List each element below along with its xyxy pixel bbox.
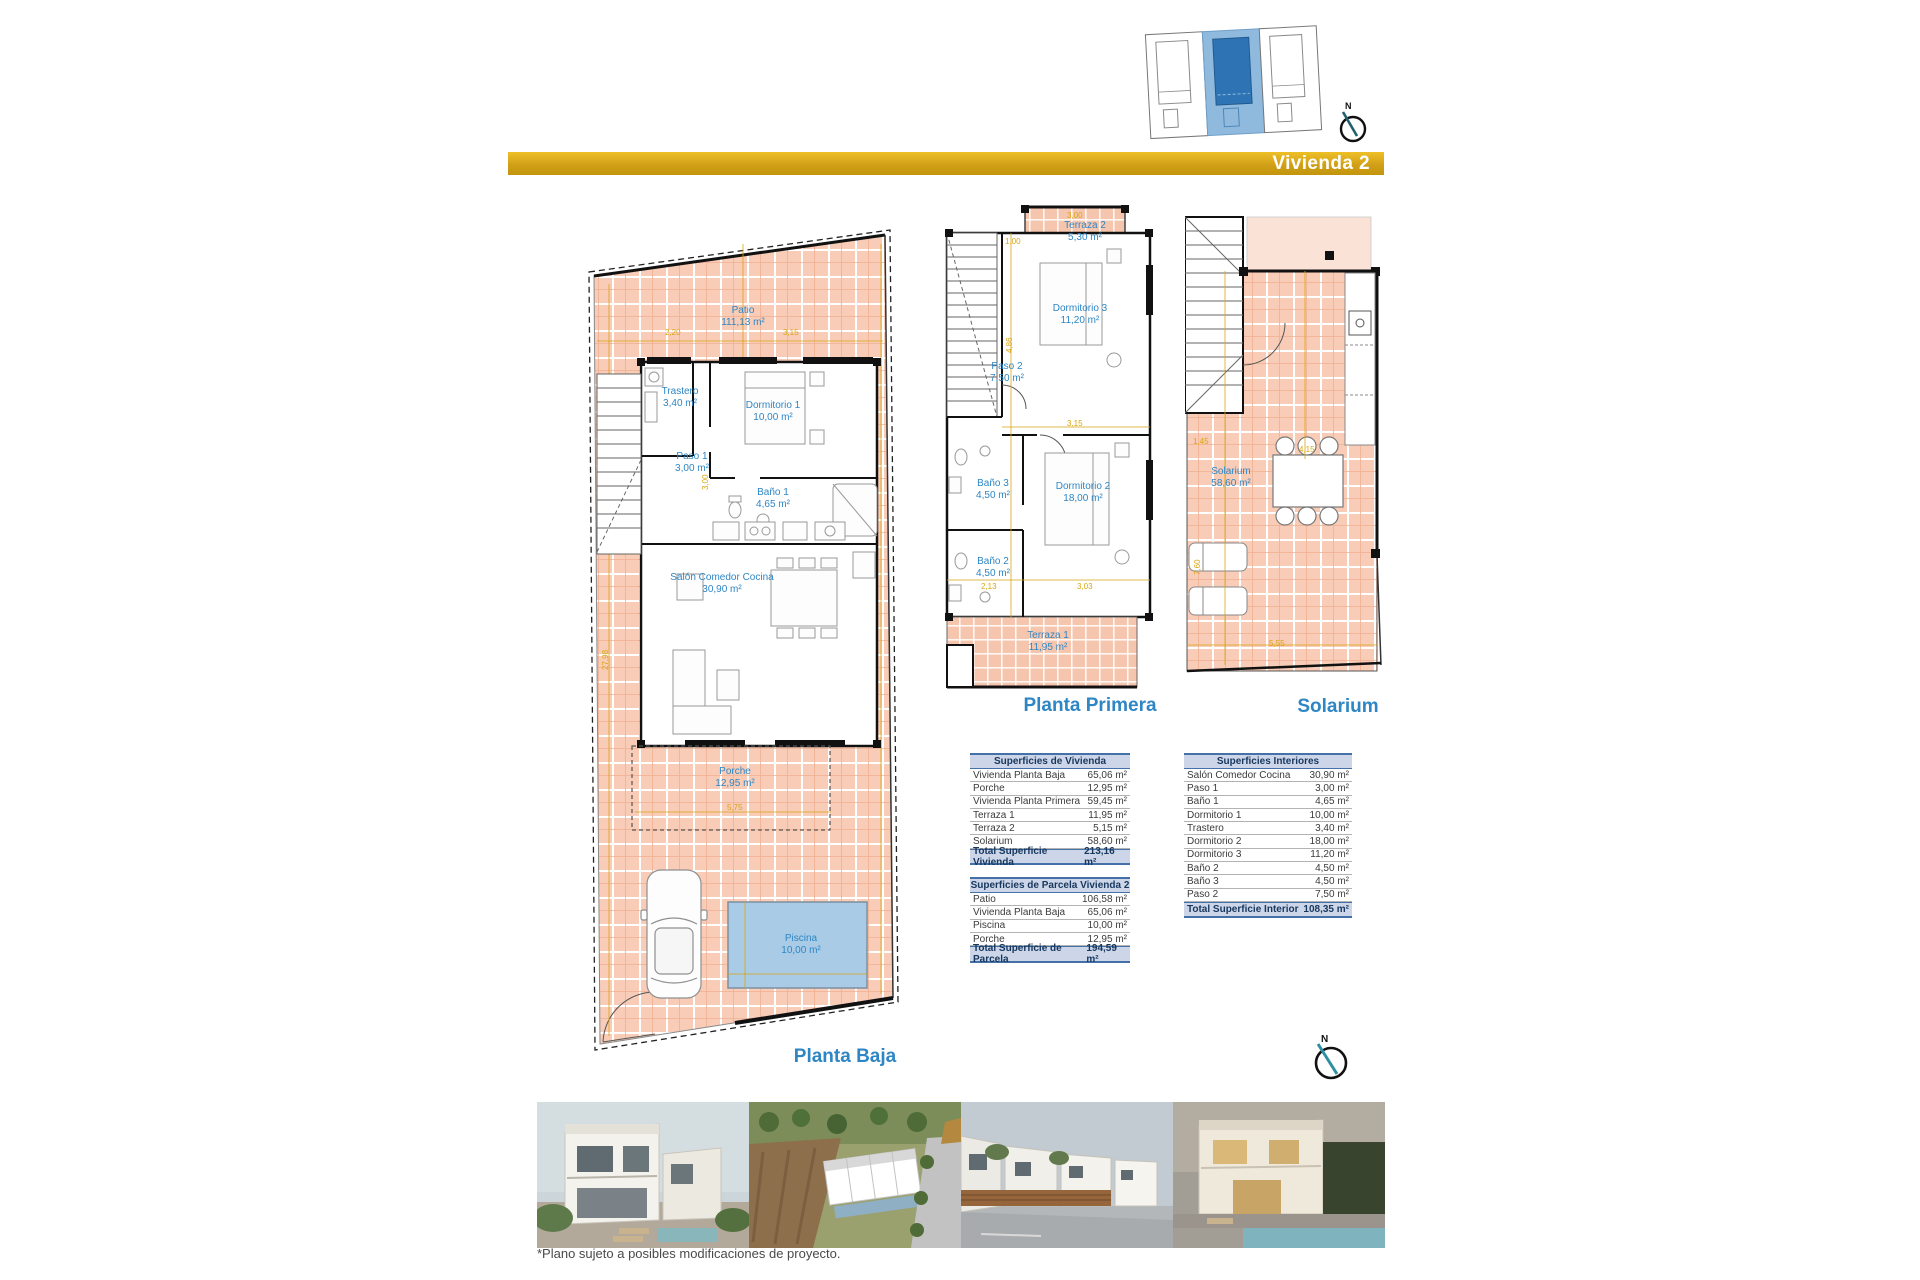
room-label-paso2: Paso 27,50 m² (990, 361, 1024, 385)
table-row: Vivienda Planta Baja65,06 m² (970, 769, 1130, 782)
planta-baja-drawing (585, 222, 903, 1060)
table-row: Dormitorio 110,00 m² (1184, 809, 1352, 822)
dimension-label: 5,75 (727, 803, 743, 812)
plan-title-planta-baja: Planta Baja (794, 1046, 896, 1068)
table-row: Vivienda Planta Primera59,45 m² (970, 796, 1130, 809)
dimension-label: 3,03 (1077, 582, 1093, 591)
compass-bottom-n: N (1321, 1034, 1328, 1045)
table-total-row: Total Superficie de Parcela194,59 m² (970, 946, 1130, 963)
dimension-label: 4,15 (1299, 445, 1315, 454)
room-label-dormitorio1: Dormitorio 110,00 m² (746, 400, 800, 424)
table-row: Piscina10,00 m² (970, 920, 1130, 933)
dimension-label: 2,20 (665, 328, 681, 337)
table-row: Baño 14,65 m² (1184, 796, 1352, 809)
compass-top-n: N (1345, 101, 1352, 111)
plan-planta-baja: Patio111,13 m² Trastero3,40 m² Dormitori… (585, 222, 903, 1060)
room-label-terraza2: Terraza 25,30 m² (1064, 220, 1106, 244)
room-label-paso1: Paso 13,00 m² (675, 451, 709, 475)
table-row: Terraza 111,95 m² (970, 809, 1130, 822)
table-header: Superficies Interiores (1184, 753, 1352, 769)
room-label-porche: Porche12,95 m² (715, 766, 754, 790)
table-row: Trastero3,40 m² (1184, 822, 1352, 835)
render-photo-villa (537, 1102, 749, 1248)
room-label-bano3: Baño 34,50 m² (976, 478, 1010, 502)
room-label-trastero: Trastero3,40 m² (662, 386, 699, 410)
table-row: Baño 34,50 m² (1184, 875, 1352, 888)
table-superficies-interiores: Superficies Interiores Salón Comedor Coc… (1184, 753, 1352, 918)
dimension-label: 1,45 (1193, 437, 1209, 446)
dimension-label: 3,15 (1067, 419, 1083, 428)
table-row: Dormitorio 311,20 m² (1184, 849, 1352, 862)
room-label-dormitorio3: Dormitorio 311,20 m² (1053, 303, 1107, 327)
table-header: Superficies de Vivienda (970, 753, 1130, 769)
room-label-dormitorio2: Dormitorio 218,00 m² (1056, 481, 1110, 505)
dimension-label: 4,86 (1005, 337, 1014, 353)
table-row: Dormitorio 218,00 m² (1184, 835, 1352, 848)
plan-title-solarium: Solarium (1297, 696, 1378, 718)
dimension-label: 2,13 (981, 582, 997, 591)
dimension-label: 3,00 (701, 474, 710, 490)
dimension-label: 5,55 (1269, 639, 1285, 648)
table-total-row: Total Superficie Vivienda213,16 m² (970, 849, 1130, 866)
table-header: Superficies de Parcela Vivienda 2 (970, 877, 1130, 893)
room-label-bano1: Baño 14,65 m² (756, 487, 790, 511)
table-row: Salón Comedor Cocina30,90 m² (1184, 769, 1352, 782)
plan-title-planta-primera: Planta Primera (1023, 695, 1156, 717)
compass-bottom-icon: N (1307, 1030, 1355, 1086)
table-row: Paso 13,00 m² (1184, 782, 1352, 795)
plan-solarium: Solarium58,60 m² 4,15 7,60 5,55 1,45 (1185, 215, 1397, 697)
room-label-terraza1: Terraza 111,95 m² (1027, 630, 1069, 654)
table-row: Patio106,58 m² (970, 893, 1130, 906)
plan-planta-primera: Terraza 25,30 m² Dormitorio 311,20 m² Pa… (945, 205, 1173, 705)
render-photo-street (961, 1102, 1173, 1248)
footnote: *Plano sujeto a posibles modificaciones … (537, 1246, 841, 1261)
room-label-patio: Patio111,13 m² (721, 305, 765, 329)
solarium-drawing (1185, 215, 1397, 697)
table-row: Porche12,95 m² (970, 782, 1130, 795)
room-label-piscina: Piscina10,00 m² (781, 933, 820, 957)
room-label-salon: Salón Comedor Cocina30,90 m² (670, 572, 773, 596)
table-row: Baño 24,50 m² (1184, 862, 1352, 875)
dimension-label: 3,00 (1067, 211, 1083, 220)
table-superficies-vivienda: Superficies de Vivienda Vivienda Planta … (970, 753, 1130, 865)
plan-sheet: N Vivienda 2 (0, 0, 1920, 1280)
room-label-solarium: Solarium58,60 m² (1211, 466, 1250, 490)
compass-top-icon: N (1335, 98, 1371, 146)
dimension-label: 27,98 (601, 650, 610, 670)
dimension-label: 3,15 (783, 328, 799, 337)
site-plan-diagram (1140, 22, 1335, 144)
table-total-row: Total Superficie Interior108,35 m² (1184, 902, 1352, 919)
render-photo-dusk (1173, 1102, 1385, 1248)
table-row: Vivienda Planta Baja65,06 m² (970, 906, 1130, 919)
table-row: Terraza 25,15 m² (970, 822, 1130, 835)
table-row: Paso 27,50 m² (1184, 889, 1352, 902)
room-label-bano2: Baño 24,50 m² (976, 556, 1010, 580)
title-banner: Vivienda 2 (508, 152, 1384, 175)
render-photo-aerial (749, 1102, 961, 1248)
table-superficies-parcela: Superficies de Parcela Vivienda 2 Patio1… (970, 877, 1130, 963)
page-title: Vivienda 2 (1272, 153, 1370, 175)
dimension-label: 1,00 (1005, 237, 1021, 246)
dimension-label: 7,60 (1193, 559, 1202, 575)
